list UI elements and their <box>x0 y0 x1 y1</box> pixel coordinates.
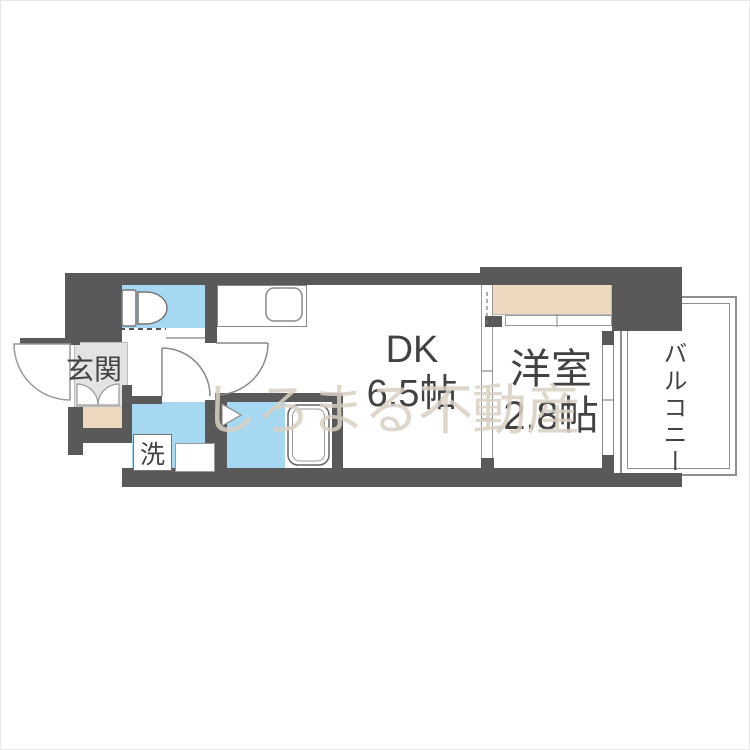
wall-western-right-bottom <box>602 455 614 473</box>
wall-top-left <box>65 273 480 285</box>
dk-label-line1: DK <box>338 329 486 371</box>
room-toilet <box>120 280 205 328</box>
wall-partition-stub <box>481 458 494 470</box>
entrance-label: 玄関 <box>66 356 128 384</box>
kitchen-counter <box>217 285 307 327</box>
closet-door-track <box>505 315 612 326</box>
wall-top-right <box>480 267 612 285</box>
western-room-label-line2: 2.8帖 <box>477 392 625 440</box>
basin-box <box>175 443 215 472</box>
western-room-label: 洋室 2.8帖 <box>477 347 625 440</box>
hallway-door-arc-icon <box>162 348 210 396</box>
room-bathroom <box>227 402 287 468</box>
floor-plan: 洗 玄関 DK 6.5帖 洋室 2.8帖 バルコニー しろまる不動産 <box>0 0 750 750</box>
closet <box>491 280 612 315</box>
wall-topleft-block <box>65 273 122 342</box>
bathtub-area <box>285 402 335 468</box>
wall-entrance-lintel <box>20 338 80 345</box>
dk-label-line2: 6.5帖 <box>338 371 486 418</box>
wall-above-washroom <box>128 396 162 404</box>
wall-below-step <box>74 428 122 443</box>
entrance-door-arc-icon <box>14 344 70 400</box>
washer-label: 洗 <box>140 435 165 471</box>
western-room-label-line1: 洋室 <box>477 347 625 392</box>
dk-door-arc-icon <box>216 343 268 395</box>
dk-label: DK 6.5帖 <box>338 329 486 418</box>
wall-toilet-right <box>205 273 217 343</box>
washer-label-box: 洗 <box>133 434 172 471</box>
wall-above-bath <box>215 393 332 402</box>
wall-closet-corner-stub <box>485 316 502 327</box>
wall-western-right-top <box>602 331 614 345</box>
balcony-label: バルコニー <box>660 341 684 481</box>
wall-entrance-washroom <box>122 385 132 443</box>
wall-block-topright <box>612 267 682 331</box>
